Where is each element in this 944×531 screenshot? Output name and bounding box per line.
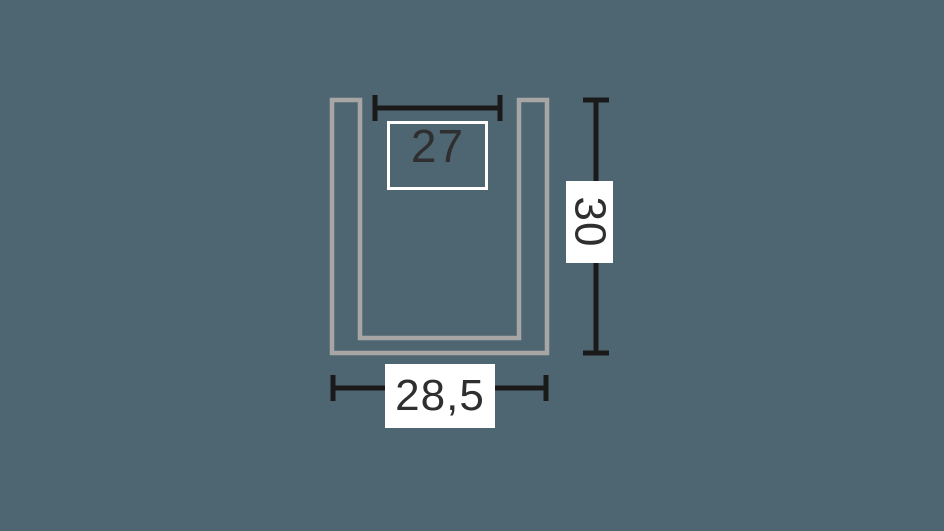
outer-width-value: 28,5 xyxy=(395,374,485,418)
label-outer-width: 28,5 xyxy=(385,364,495,428)
technical-drawing xyxy=(0,0,944,531)
height-value: 30 xyxy=(568,197,612,248)
dimension-line-inner-width xyxy=(375,95,500,121)
label-height: 30 xyxy=(566,181,613,263)
profile-drawing-canvas: 27 30 28,5 xyxy=(0,0,944,531)
inner-width-value: 27 xyxy=(411,123,464,169)
label-inner-width: 27 xyxy=(387,121,488,190)
